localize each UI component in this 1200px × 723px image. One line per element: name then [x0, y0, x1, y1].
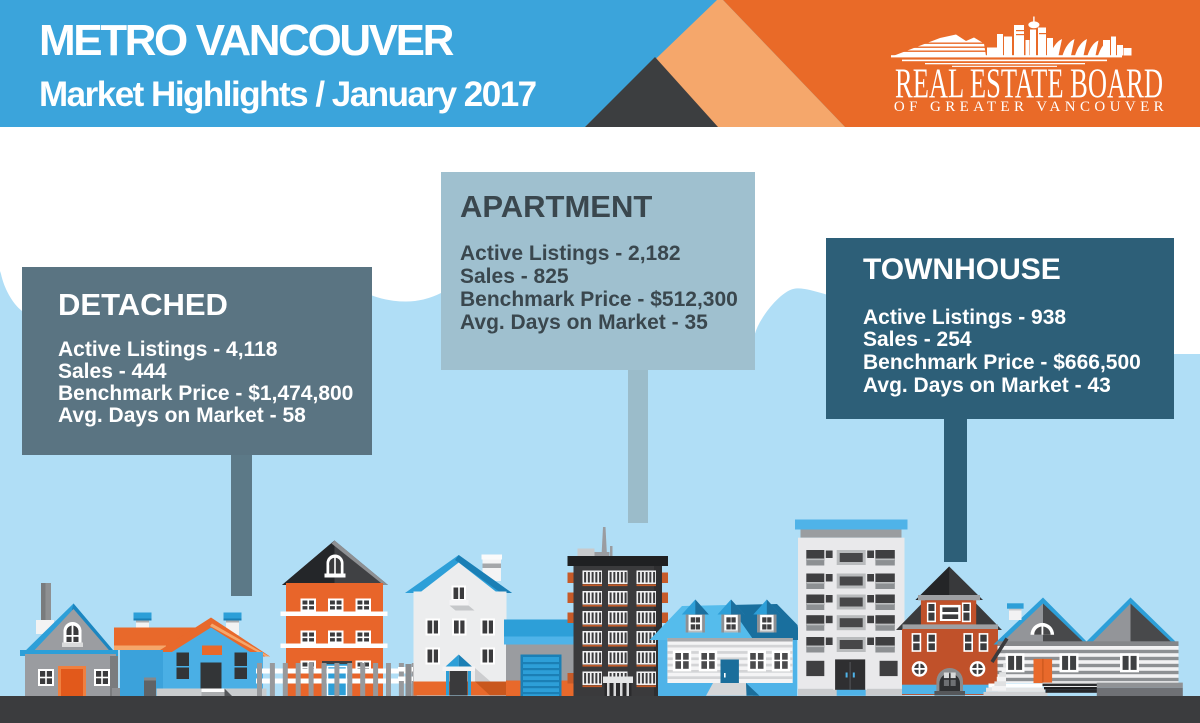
svg-text:OF GREATER VANCOUVER: OF GREATER VANCOUVER	[894, 99, 1168, 115]
